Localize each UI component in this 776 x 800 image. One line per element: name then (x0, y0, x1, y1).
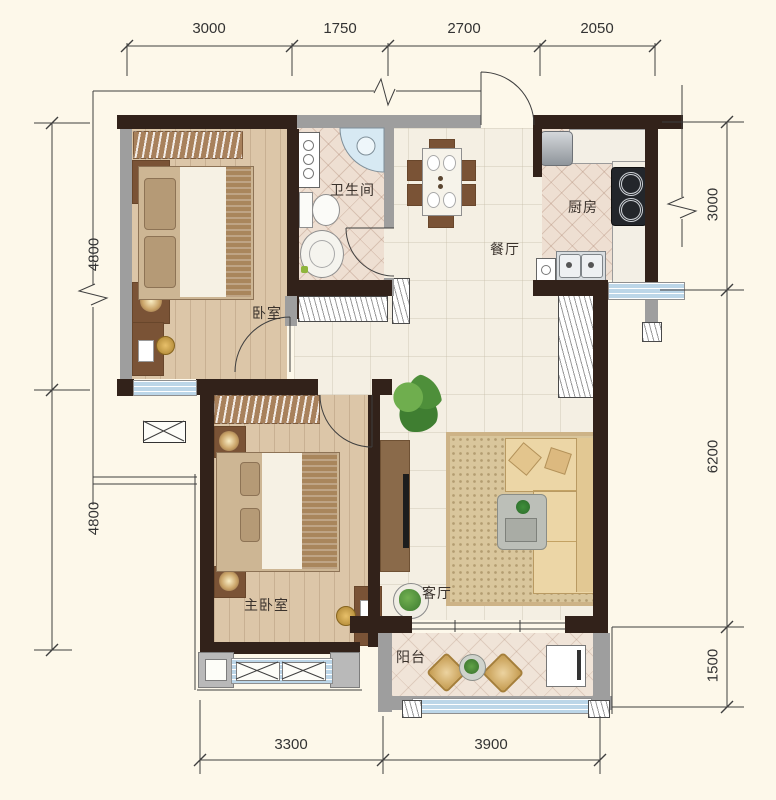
bed-pillow (240, 462, 260, 496)
dim-left-1: 4800 (86, 225, 103, 285)
wall (297, 115, 481, 128)
wall (117, 115, 297, 129)
burner-icon (619, 172, 643, 196)
room-label-bedroom: 卧室 (252, 303, 282, 323)
washer-panel-icon (577, 650, 581, 680)
tray-icon (505, 518, 537, 542)
table-center-icon (438, 184, 443, 189)
wall (368, 395, 380, 647)
wall (593, 294, 608, 633)
dim-top-3: 2700 (434, 20, 494, 37)
room-label-dining: 餐厅 (490, 239, 520, 259)
window-pane (236, 662, 280, 681)
column (642, 322, 662, 342)
room-label-balcony: 阳台 (396, 647, 426, 667)
lamp-icon (219, 431, 239, 451)
kitchen-window (608, 282, 685, 300)
plant-pot-icon (516, 500, 530, 514)
dim-right-1: 3000 (705, 175, 722, 235)
bed-pillow (144, 178, 176, 230)
bay-window-frame (330, 652, 360, 688)
wall (350, 616, 412, 633)
sink-drain-icon (588, 262, 594, 268)
wall (285, 296, 297, 326)
bed-sheet (180, 167, 226, 297)
column (588, 700, 610, 718)
dim-right-2: 6200 (705, 427, 722, 487)
column (402, 700, 422, 718)
window-pane (282, 662, 326, 681)
wall (384, 128, 394, 228)
bed-pillow (240, 508, 260, 542)
plant-icon (390, 374, 442, 432)
wardrobe (214, 395, 320, 424)
bedroom-window (133, 380, 197, 396)
dim-top-2: 1750 (310, 20, 370, 37)
wall (565, 616, 608, 633)
cabinet-knob-icon (541, 265, 551, 275)
balcony-plant-icon (464, 659, 479, 674)
room-label-living: 客厅 (422, 583, 452, 603)
dim-bottom-2: 3900 (461, 736, 521, 753)
bed-sheet (262, 453, 302, 569)
sofa-back (576, 438, 594, 592)
dim-top-1: 3000 (179, 20, 239, 37)
soap-icon (301, 266, 308, 273)
wall (534, 115, 683, 129)
wardrobe (133, 131, 243, 159)
wall (120, 129, 132, 379)
wall (533, 115, 542, 177)
wall (372, 379, 392, 395)
burner-icon (619, 198, 643, 222)
wall (287, 280, 392, 296)
kitchen-counter (569, 129, 648, 164)
sink-drain-icon (566, 262, 572, 268)
dim-right-3: 1500 (705, 636, 722, 696)
bed-blanket (226, 167, 251, 297)
storage-cabinet (298, 296, 388, 322)
shoe-cabinet (558, 294, 595, 398)
bay-window-frame-inner (205, 659, 227, 681)
dim-bottom-1: 3300 (261, 736, 321, 753)
vent-shaft (143, 421, 186, 443)
wall (645, 115, 658, 292)
toilet-tank (299, 192, 313, 228)
dim-top-4: 2050 (567, 20, 627, 37)
plate-icon (427, 155, 440, 171)
cabinet-knob-icon (303, 168, 314, 179)
balcony-window (412, 698, 592, 714)
wall (200, 395, 214, 647)
lamp-icon (219, 571, 239, 591)
cabinet-knob-icon (303, 154, 314, 165)
dresser-paper (138, 340, 154, 362)
wall (196, 379, 318, 395)
room-label-master-bedroom: 主卧室 (244, 595, 289, 615)
stool-icon (156, 336, 175, 355)
plate-icon (443, 155, 456, 171)
room-label-kitchen: 厨房 (568, 197, 598, 217)
room-label-bathroom: 卫生间 (330, 180, 375, 200)
cabinet-knob-icon (303, 140, 314, 151)
balcony-wall (378, 633, 392, 712)
bed-pillow (144, 236, 176, 288)
plate-icon (443, 192, 456, 208)
plate-icon (427, 192, 440, 208)
washbasin-inner (309, 240, 335, 268)
storage-cabinet (392, 278, 410, 324)
floor-plant-leaves-icon (399, 589, 421, 611)
bed-blanket (302, 453, 337, 569)
tv-icon (403, 474, 409, 548)
table-center-icon (438, 176, 443, 181)
dim-left-2: 4800 (86, 489, 103, 549)
wall (117, 379, 134, 396)
fridge (540, 131, 573, 166)
floor-plan: 卧室 卫生间 餐厅 厨房 主卧室 客厅 阳台 3000 1750 2700 20… (0, 0, 776, 800)
